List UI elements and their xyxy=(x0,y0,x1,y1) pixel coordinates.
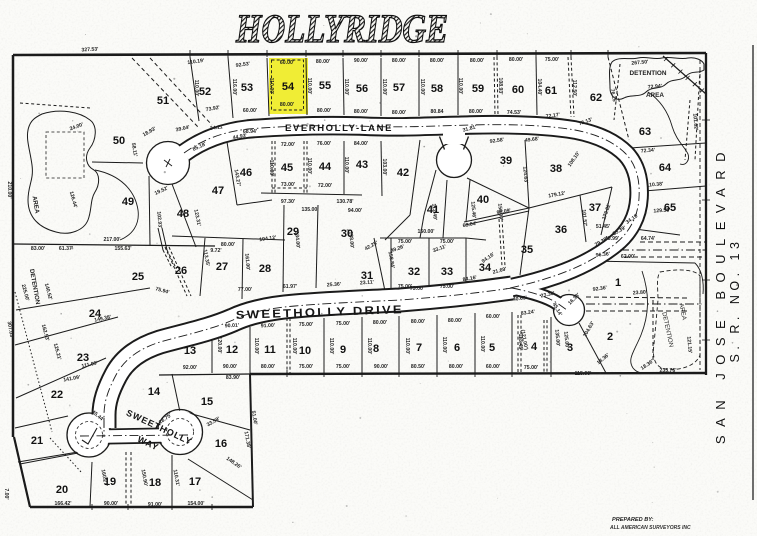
svg-text:9.72': 9.72' xyxy=(210,248,221,254)
svg-text:2: 2 xyxy=(607,331,613,343)
svg-text:15: 15 xyxy=(201,396,213,408)
svg-text:80.00': 80.00' xyxy=(448,318,462,324)
svg-text:37: 37 xyxy=(589,202,601,214)
svg-text:90.01': 90.01' xyxy=(225,323,240,330)
svg-text:130.78': 130.78' xyxy=(336,199,353,205)
svg-text:10: 10 xyxy=(299,345,311,357)
svg-text:80.00': 80.00' xyxy=(430,58,444,64)
svg-text:80.00': 80.00' xyxy=(316,59,330,65)
svg-text:75.00': 75.00' xyxy=(440,284,454,290)
svg-text:91.00': 91.00' xyxy=(148,502,162,508)
svg-text:44: 44 xyxy=(319,161,332,173)
svg-text:61: 61 xyxy=(545,85,557,97)
svg-text:20: 20 xyxy=(56,484,68,496)
svg-text:42: 42 xyxy=(397,167,409,179)
svg-text:80.00': 80.00' xyxy=(280,102,294,108)
svg-text:110.00': 110.00' xyxy=(306,158,312,175)
svg-text:46: 46 xyxy=(240,167,252,179)
svg-text:1: 1 xyxy=(615,277,621,289)
svg-text:25.36': 25.36' xyxy=(327,282,342,289)
svg-text:110.00': 110.00' xyxy=(343,79,349,96)
svg-text:80.00': 80.00' xyxy=(509,57,523,63)
svg-text:75.00': 75.00' xyxy=(299,364,313,370)
svg-text:HOLLYRIDGE: HOLLYRIDGE xyxy=(235,6,448,51)
svg-text:63: 63 xyxy=(639,126,651,138)
svg-text:7.00': 7.00' xyxy=(3,488,9,499)
svg-text:55: 55 xyxy=(319,80,331,92)
svg-text:80.00': 80.00' xyxy=(354,109,368,115)
svg-text:104.40': 104.40' xyxy=(536,78,542,95)
svg-text:75.00': 75.00' xyxy=(524,365,538,371)
svg-text:91.00': 91.00' xyxy=(261,323,276,330)
svg-text:75.00': 75.00' xyxy=(545,57,559,63)
svg-text:110.00': 110.00' xyxy=(306,78,312,95)
svg-text:61.37': 61.37' xyxy=(59,246,73,252)
svg-text:40: 40 xyxy=(477,194,489,206)
svg-text:38: 38 xyxy=(550,163,562,175)
svg-text:13: 13 xyxy=(184,345,196,357)
svg-text:233.76': 233.76' xyxy=(659,368,676,374)
svg-text:75.00': 75.00' xyxy=(410,286,424,292)
svg-text:80.00': 80.00' xyxy=(261,364,275,370)
svg-text:94.00': 94.00' xyxy=(348,208,362,214)
svg-text:50: 50 xyxy=(113,135,125,147)
svg-text:110.00': 110.00' xyxy=(253,338,259,355)
svg-text:11: 11 xyxy=(264,344,276,356)
svg-text:4: 4 xyxy=(531,341,538,353)
svg-text:43: 43 xyxy=(356,159,368,171)
svg-text:21: 21 xyxy=(31,435,43,447)
svg-text:110.00': 110.00' xyxy=(381,79,387,96)
svg-text:AREA: AREA xyxy=(646,92,664,99)
svg-text:90.00': 90.00' xyxy=(104,501,118,507)
svg-text:155.63': 155.63' xyxy=(114,246,131,252)
svg-text:59: 59 xyxy=(472,83,484,95)
svg-text:60.00': 60.00' xyxy=(486,314,500,320)
svg-text:60: 60 xyxy=(512,84,524,96)
svg-text:64.74': 64.74' xyxy=(641,236,655,242)
svg-text:84.00': 84.00' xyxy=(354,141,368,147)
svg-text:12: 12 xyxy=(226,344,238,356)
svg-text:77.00': 77.00' xyxy=(238,287,252,293)
svg-text:112.50': 112.50' xyxy=(571,80,577,97)
svg-text:72.94': 72.94' xyxy=(648,83,663,90)
svg-text:22: 22 xyxy=(51,389,63,401)
svg-text:80.00': 80.00' xyxy=(470,58,484,64)
svg-text:25: 25 xyxy=(132,271,144,283)
svg-text:80.00': 80.00' xyxy=(221,242,235,248)
svg-text:35: 35 xyxy=(521,244,533,256)
svg-text:110.00': 110.00' xyxy=(457,78,463,95)
svg-text:97.30': 97.30' xyxy=(281,199,295,205)
svg-text:72.00': 72.00' xyxy=(318,183,332,189)
svg-text:EVERHOLLY-LANE: EVERHOLLY-LANE xyxy=(285,123,393,134)
svg-text:45: 45 xyxy=(281,162,293,174)
svg-text:58: 58 xyxy=(431,83,443,95)
svg-text:53: 53 xyxy=(241,82,253,94)
svg-text:56: 56 xyxy=(356,83,368,95)
svg-text:16: 16 xyxy=(215,438,227,450)
svg-text:SAN JOSE BOULEVARD: SAN JOSE BOULEVARD xyxy=(713,144,728,444)
svg-text:110.00': 110.00' xyxy=(441,337,447,354)
svg-text:51: 51 xyxy=(157,95,169,107)
svg-text:80.50': 80.50' xyxy=(411,364,425,370)
svg-text:80.00': 80.00' xyxy=(392,58,406,64)
svg-text:36: 36 xyxy=(555,224,567,236)
svg-text:62.00': 62.00' xyxy=(621,254,635,260)
svg-text:90.00': 90.00' xyxy=(354,58,368,64)
svg-text:115.00': 115.00' xyxy=(575,371,592,377)
svg-text:23.80': 23.80' xyxy=(633,290,648,297)
svg-text:75.00': 75.00' xyxy=(299,322,313,328)
svg-text:49: 49 xyxy=(122,196,134,208)
svg-text:52: 52 xyxy=(199,86,211,98)
svg-text:PREPARED BY:: PREPARED BY: xyxy=(612,517,654,523)
svg-text:39: 39 xyxy=(500,155,512,167)
svg-text:110.00': 110.00' xyxy=(268,78,274,95)
svg-text:110.00': 110.00' xyxy=(328,338,334,355)
svg-text:116.00': 116.00' xyxy=(231,79,237,96)
svg-text:80.00': 80.00' xyxy=(373,320,387,326)
svg-text:217.00': 217.00' xyxy=(103,237,120,243)
svg-text:75.00': 75.00' xyxy=(336,321,350,327)
svg-text:135.00': 135.00' xyxy=(301,207,318,213)
svg-text:154.00': 154.00' xyxy=(187,501,204,507)
svg-text:327.53': 327.53' xyxy=(81,47,98,54)
svg-text:110.00': 110.00' xyxy=(479,336,485,353)
svg-text:48: 48 xyxy=(177,208,189,220)
svg-text:ALL AMERICAN SURVEYORS INC: ALL AMERICAN SURVEYORS INC xyxy=(609,525,691,531)
svg-text:110.00': 110.00' xyxy=(291,338,297,355)
svg-text:72.00': 72.00' xyxy=(281,142,295,148)
svg-text:DETENTION: DETENTION xyxy=(630,70,667,77)
svg-text:103.00': 103.00' xyxy=(381,158,387,175)
svg-text:80.00': 80.00' xyxy=(392,110,406,116)
svg-text:5: 5 xyxy=(489,342,495,354)
svg-text:80.00': 80.00' xyxy=(411,319,425,325)
svg-text:62: 62 xyxy=(590,92,602,104)
svg-text:74.53': 74.53' xyxy=(507,110,521,116)
svg-text:54: 54 xyxy=(282,81,295,93)
svg-text:33: 33 xyxy=(441,266,453,278)
svg-text:32: 32 xyxy=(408,266,420,278)
svg-text:9: 9 xyxy=(340,344,346,356)
svg-text:73.00': 73.00' xyxy=(281,182,295,188)
svg-text:110.00': 110.00' xyxy=(366,338,372,355)
svg-text:8: 8 xyxy=(373,343,379,355)
svg-text:51.45': 51.45' xyxy=(596,224,610,230)
svg-text:18: 18 xyxy=(149,477,161,489)
svg-text:7: 7 xyxy=(416,342,422,354)
svg-text:23.11': 23.11' xyxy=(360,280,374,287)
svg-text:110.00': 110.00' xyxy=(193,80,199,97)
svg-text:S. R. NO. 13: S. R. NO. 13 xyxy=(728,238,742,363)
svg-text:26: 26 xyxy=(175,265,187,277)
svg-text:80.00': 80.00' xyxy=(469,109,483,115)
svg-text:61.97': 61.97' xyxy=(283,284,297,290)
svg-text:92.00': 92.00' xyxy=(183,365,197,371)
svg-text:90.00': 90.00' xyxy=(223,364,237,370)
svg-text:28: 28 xyxy=(259,263,271,275)
svg-text:129.55': 129.55' xyxy=(653,208,670,215)
svg-text:6: 6 xyxy=(454,342,460,354)
svg-text:110.00': 110.00' xyxy=(343,157,349,174)
svg-text:110.00': 110.00' xyxy=(404,338,410,355)
svg-text:60.00': 60.00' xyxy=(486,364,500,370)
svg-text:83.90': 83.90' xyxy=(226,375,240,381)
svg-text:60.00': 60.00' xyxy=(280,60,294,66)
svg-text:64: 64 xyxy=(659,162,672,174)
svg-text:83.00': 83.00' xyxy=(31,246,45,252)
svg-text:14: 14 xyxy=(148,386,161,398)
svg-text:80.00': 80.00' xyxy=(449,364,463,370)
svg-text:110.00': 110.00' xyxy=(419,79,425,96)
svg-text:75.00': 75.00' xyxy=(336,364,350,370)
svg-text:166.42': 166.42' xyxy=(54,501,71,507)
svg-text:90.00': 90.00' xyxy=(374,364,388,370)
svg-text:210.00': 210.00' xyxy=(6,181,12,198)
svg-text:80.00': 80.00' xyxy=(317,108,331,114)
svg-text:60.00': 60.00' xyxy=(243,108,257,114)
svg-text:110.00': 110.00' xyxy=(268,160,274,177)
svg-text:76.00': 76.00' xyxy=(317,141,331,147)
svg-text:17: 17 xyxy=(189,476,201,488)
svg-text:57: 57 xyxy=(393,82,405,94)
svg-text:27: 27 xyxy=(216,261,228,273)
svg-text:150.00': 150.00' xyxy=(417,229,434,235)
svg-text:80.84: 80.84 xyxy=(431,109,444,115)
svg-text:108.93': 108.93' xyxy=(497,77,503,94)
svg-text:47: 47 xyxy=(212,185,224,197)
svg-text:72.34': 72.34' xyxy=(641,147,656,154)
svg-text:120.00': 120.00' xyxy=(216,336,222,353)
